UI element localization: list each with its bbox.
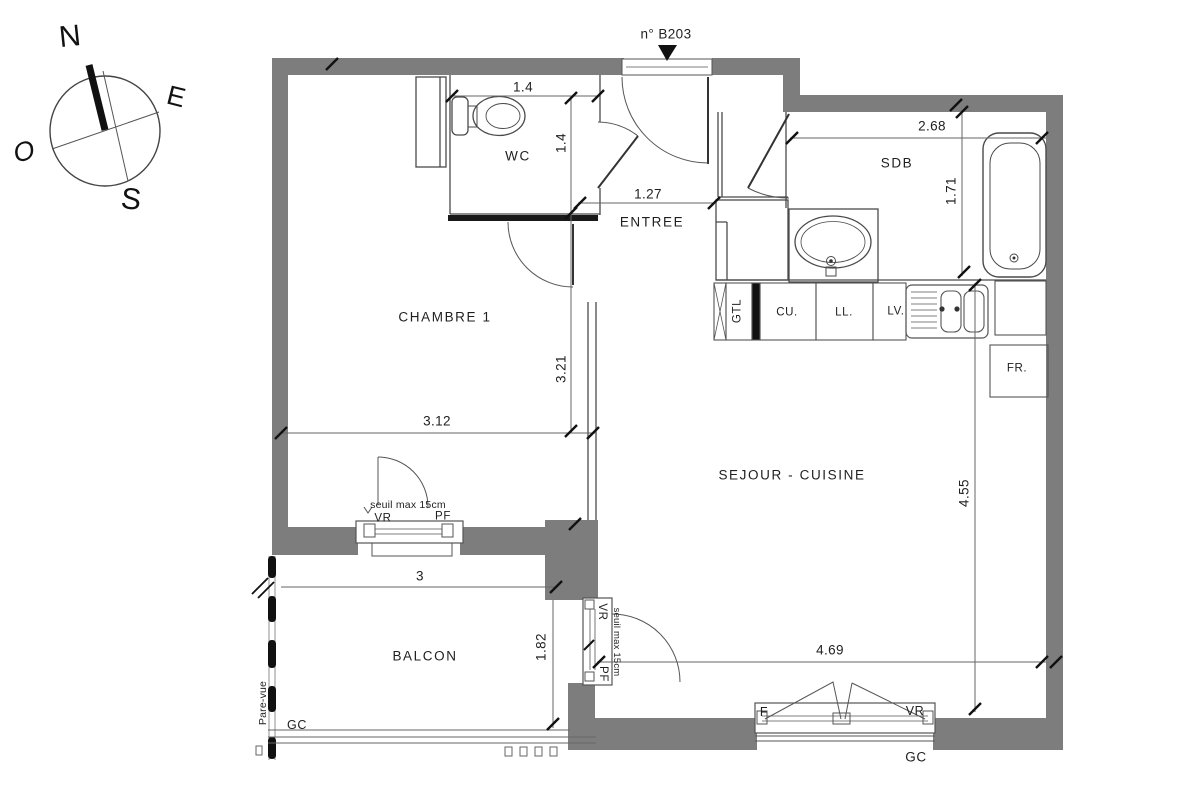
dim-wc-width: 1.4 [513,80,533,94]
gtl-black-strip [752,283,760,340]
entry-door-swing-arc [622,77,708,163]
dim-chambre-depth: 3.21 [554,355,568,383]
room-label-sejour: SEJOUR - CUISINE [718,468,865,482]
compass-rose [50,65,160,186]
dim-sdb-width: 2.68 [918,119,946,133]
kitchen-label-ll: LL. [835,307,853,319]
partitions [416,75,1046,520]
balcon-door-pf-label: PF [596,666,608,682]
kitchen-label-lv: LV. [887,306,904,318]
balcon-door-swing-arc [612,614,680,682]
wall-dark-band [448,215,598,221]
walls [272,58,1063,750]
room-label-entree: ENTREE [620,215,684,229]
floorplan-linework [0,0,1184,800]
entry-door [622,59,712,164]
sdb-door-leaf [748,114,789,188]
dimension-ticks [275,58,1062,730]
balcon-railing [252,556,276,760]
dim-balcon-depth: 1.82 [534,633,548,661]
unit-number: n° B203 [641,27,692,41]
kitchen-sink-icon [906,285,988,338]
compass-south-label: S [119,184,142,216]
room-label-chambre: CHAMBRE 1 [398,310,491,324]
wall-segment [460,527,545,555]
balcon-edge [256,730,596,756]
wc-door [598,122,638,188]
wall-segment [568,683,595,750]
dim-wc-depth: 1.4 [554,133,568,153]
kitchen-label-gtl: GTL [732,299,744,323]
wall-segment [1046,95,1063,750]
compass-north-label: N [58,21,83,53]
sdb-door [748,114,789,198]
sejour-window-vr-label: VR [906,705,925,718]
washbasin-icon [789,209,878,282]
wall-segment [545,520,598,600]
bathtub-icon [983,133,1046,277]
counter-box [995,281,1046,335]
wall-segment [595,718,757,750]
dim-entree-width: 1.27 [634,187,662,201]
kitchen-label-cu: CU. [776,307,798,319]
chambre-door [508,222,573,287]
pare-vue-note: Pare-vue [258,681,269,725]
dim-balcon-width: 3 [416,569,424,583]
wc-door-leaf [598,136,638,188]
wall-segment [783,95,1063,112]
break-mark [252,578,274,598]
balcon-door-vr-label: VR [595,603,607,620]
dim-chambre-width: 3.12 [423,414,451,428]
dim-sejour-width: 4.69 [816,643,844,657]
dim-sejour-depth: 4.55 [957,479,971,507]
balcon-door-note: seuil max 15cm [611,608,621,677]
chambre-window-pf-label: PF [435,511,451,523]
room-label-sdb: SDB [881,156,914,170]
dimension-lines [281,96,1046,728]
kitchen-label-fr: FR. [1007,363,1027,375]
compass-needle [89,65,105,130]
wall-segment [272,58,624,75]
wc-door-swing-arc [598,122,638,136]
floor-plan: n° B203 N E O S WC ENTREE SDB CHAMBRE 1 … [0,0,1184,800]
room-label-wc: WC [505,149,531,163]
chambre-window-note: seuil max 15cm [370,500,446,511]
wall-segment [933,718,1063,750]
gc-sejour-label: GC [905,750,926,764]
kitchen-units [714,281,1048,397]
wall-segment [272,75,288,554]
gc-balcon-label: GC [287,719,307,732]
chambre-door-swing-arc [508,222,573,287]
dim-sdb-depth: 1.71 [944,177,958,205]
sejour-window-f-label: F [760,706,768,719]
toilet-icon [452,97,525,136]
chambre-window-vr-label: VR [374,513,391,525]
room-label-balcon: BALCON [392,649,457,663]
wall-segment [272,527,358,555]
